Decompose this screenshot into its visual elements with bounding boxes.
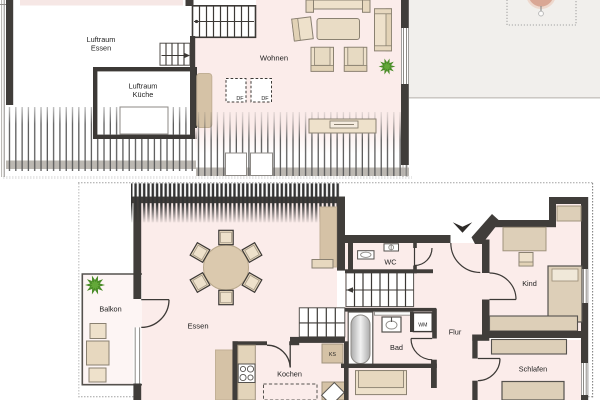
svg-text:Flur: Flur [449,328,462,337]
svg-text:Essen: Essen [91,44,111,53]
svg-text:WM: WM [418,323,427,329]
svg-text:Kind: Kind [522,279,537,288]
svg-text:DF: DF [236,96,244,102]
svg-text:Kochen: Kochen [277,370,302,379]
svg-text:Wohnen: Wohnen [260,54,288,63]
svg-text:Bad: Bad [390,343,403,352]
svg-text:Schlafen: Schlafen [519,365,547,374]
svg-text:WC: WC [384,258,396,267]
svg-text:DF: DF [261,96,269,102]
svg-text:Balkon: Balkon [99,305,121,314]
svg-text:Küche: Küche [133,90,154,99]
svg-text:KS: KS [329,352,336,358]
svg-text:Essen: Essen [187,322,208,331]
